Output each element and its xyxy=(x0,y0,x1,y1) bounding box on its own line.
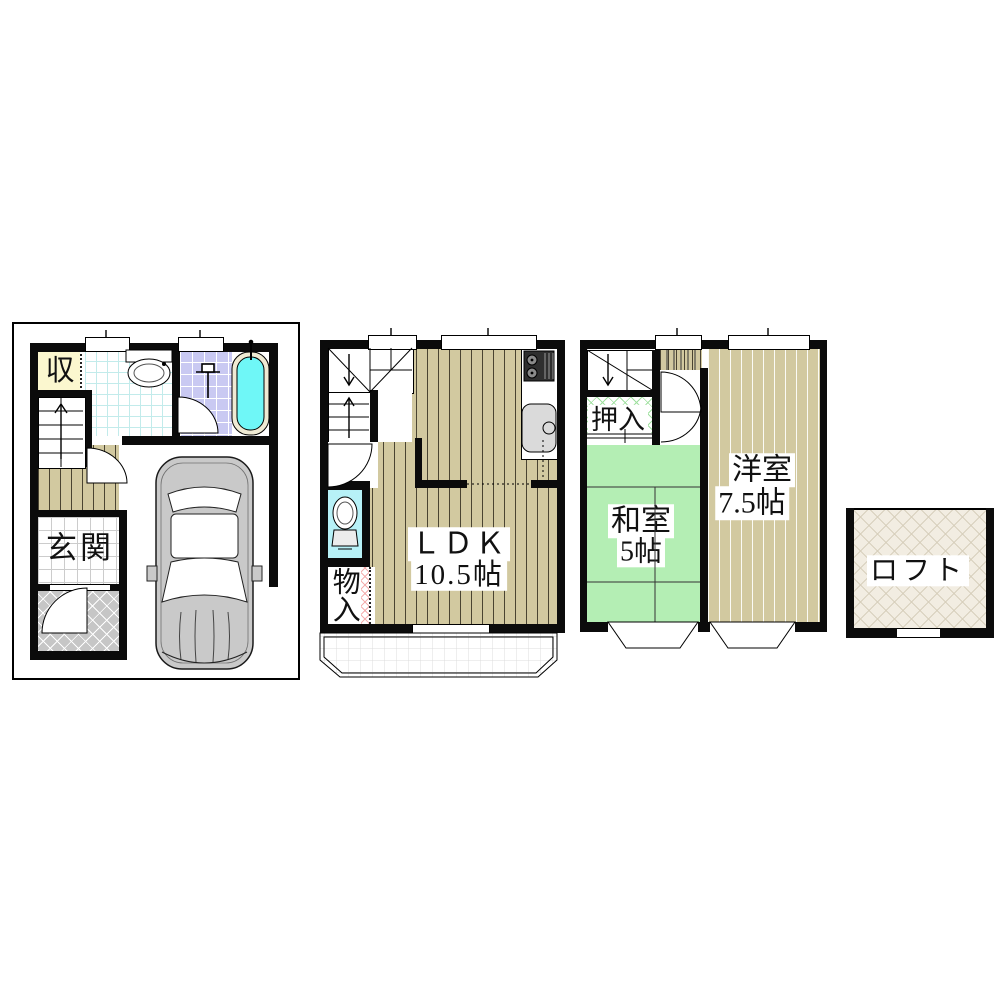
window-tick-icon xyxy=(677,328,768,336)
door-arc-stairs-2f xyxy=(328,444,372,487)
stair-up-arrow-icon xyxy=(344,398,354,438)
car-icon xyxy=(147,457,262,669)
toilet-icon xyxy=(332,497,358,549)
stair-steps-3f-lines xyxy=(667,350,695,370)
door-arc-porch xyxy=(42,588,87,633)
stove-icon xyxy=(524,351,554,381)
balcony-outline xyxy=(320,633,557,677)
shower-icon xyxy=(196,364,220,398)
stair-down-arrow-icon xyxy=(344,354,354,385)
bay-window xyxy=(710,622,795,648)
door-arc-bath xyxy=(178,397,218,433)
floorplan-canvas: 収 玄関 ＬＤＫ 10.5帖 物入 バルコニー 押入 和室 5帖 洋室 7.5帖… xyxy=(0,0,1000,1000)
stair-up-arrow-icon xyxy=(55,404,67,459)
bay-window xyxy=(608,622,698,648)
door-arc-hall-3f xyxy=(661,372,701,412)
door-arc-washroom xyxy=(87,448,127,483)
tatami-lines xyxy=(587,487,700,622)
bathtub-icon xyxy=(232,340,269,435)
window-tick-icon xyxy=(106,330,200,338)
washbasin-icon xyxy=(126,350,172,387)
staircase-3f-lines xyxy=(587,350,652,390)
vector-overlay xyxy=(0,0,1000,1000)
stair-down-arrow-icon xyxy=(603,354,613,385)
stair-landing-2f-lines xyxy=(328,348,412,392)
kitchen-sink-icon xyxy=(522,404,556,452)
fusuma-lines xyxy=(587,429,652,443)
